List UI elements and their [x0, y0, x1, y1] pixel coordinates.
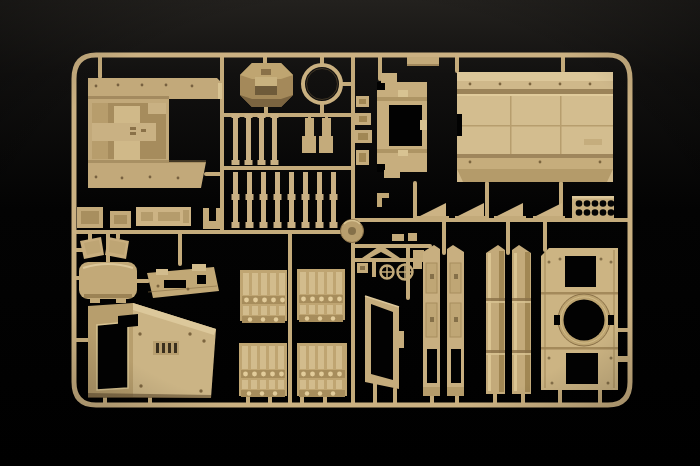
roof-panel-lip: [457, 169, 613, 182]
rack-slat: [300, 380, 306, 389]
sprue-illustration: [0, 0, 700, 466]
rack-cap: [310, 372, 315, 377]
hull-mid-bar: [92, 123, 156, 141]
rod-band: [274, 194, 282, 200]
box-b-recess: [114, 215, 127, 224]
gusset-base: [455, 216, 487, 221]
rivet: [559, 83, 562, 86]
rod-band: [330, 194, 338, 200]
rod-knob: [246, 222, 254, 228]
rod-knob: [302, 222, 310, 228]
rack-cap: [319, 372, 324, 377]
rack-slat: [279, 306, 285, 315]
rack-slat: [251, 346, 257, 369]
curved-panel-seam: [512, 298, 531, 301]
roof-panel-groove: [457, 154, 613, 158]
rack-cap: [280, 298, 285, 303]
plate-hole: [584, 200, 591, 207]
rivet: [610, 261, 613, 264]
rack-slat: [269, 346, 275, 369]
rack-cap: [243, 372, 248, 377]
rack-slat: [252, 273, 258, 295]
part-roof-curved: [79, 262, 137, 303]
part-drilled-plate: [572, 196, 614, 220]
pin-head: [369, 258, 379, 262]
rod-band: [260, 194, 268, 200]
rack-cap: [337, 372, 342, 377]
sprue-photo: [0, 0, 700, 466]
hull-seam-top: [88, 96, 169, 99]
rack-cap: [252, 372, 257, 377]
cab-grille-slat: [174, 343, 177, 353]
part-window-frame-angled: [365, 296, 404, 389]
rack-cap: [273, 391, 277, 395]
rivet: [469, 83, 472, 86]
rack-cap: [319, 297, 324, 302]
rack-cap: [274, 317, 278, 321]
turret-ring-notch: [608, 315, 614, 325]
rack-slat: [278, 346, 284, 369]
roof-panel-smudge: [584, 139, 602, 145]
plate-hole: [592, 200, 599, 207]
panel-handle: [454, 317, 458, 322]
deck-vent: [164, 280, 186, 288]
rivet: [589, 83, 592, 86]
hull-bevel: [218, 83, 222, 99]
curved-panel-seam-light: [512, 301, 531, 303]
part-ammo-rack-3: [239, 343, 287, 397]
rod-band: [316, 194, 324, 200]
curved-panel-shade: [499, 251, 504, 392]
rivet: [599, 161, 602, 164]
panel-slot: [451, 349, 461, 383]
strip-recess: [359, 99, 366, 104]
rack-cap: [261, 372, 266, 377]
curved-panel-seam: [486, 298, 505, 301]
rack-cap: [318, 391, 322, 395]
rack-cap: [318, 316, 322, 320]
panel-handle: [430, 317, 434, 322]
plate-hole: [608, 200, 615, 207]
door-frame-band: [377, 97, 427, 101]
part-ammo-rack-1: [240, 270, 287, 323]
rack-cap: [271, 298, 276, 303]
rack-slat: [260, 380, 266, 389]
rack-slat: [251, 380, 257, 389]
rivet: [121, 177, 124, 180]
rack-cap: [301, 297, 306, 302]
rivet: [191, 85, 194, 88]
rod-flange: [258, 114, 266, 118]
rivet: [139, 384, 142, 387]
rod-flange: [271, 114, 279, 118]
long-bar-detail: [141, 212, 153, 221]
long-bar-detail: [183, 210, 189, 223]
part-ammo-rack-4: [297, 343, 347, 397]
rivet: [548, 261, 551, 264]
panel-handle: [430, 274, 434, 279]
turret-ring-notch: [554, 315, 560, 325]
hull-mark: [141, 129, 146, 132]
plate-hole: [600, 209, 607, 216]
rivet: [117, 84, 120, 87]
rack-slat: [300, 272, 306, 294]
hull-seam-bottom: [88, 160, 206, 163]
rack-slat: [318, 346, 324, 369]
rack-slat: [309, 346, 315, 369]
rack-slat: [318, 305, 324, 314]
door-frame-tab-bottom: [384, 170, 400, 178]
rivet: [600, 258, 603, 261]
roof-curved-tab: [116, 298, 126, 303]
long-bar-detail: [158, 212, 180, 221]
cab-grille-slat: [168, 343, 171, 353]
part-side-panel-right: [447, 245, 464, 396]
rod-knob: [316, 222, 324, 228]
part-roof-panel: [457, 72, 613, 182]
rod-knob: [274, 222, 282, 228]
panel-foot: [423, 387, 440, 396]
hull-box-lower: [114, 141, 140, 160]
rack-slat: [336, 272, 342, 294]
rivet: [199, 389, 202, 392]
cab-top-opening: [118, 314, 138, 328]
roof-panel-top-band: [457, 72, 613, 81]
rivet: [138, 332, 141, 335]
rack-cap: [305, 391, 309, 395]
rack-slat: [300, 346, 306, 369]
cupola-scope: [261, 69, 271, 75]
rivet: [95, 176, 98, 179]
plate-body: [572, 196, 614, 220]
rack-slat: [327, 380, 333, 389]
rod-knob: [330, 222, 338, 228]
rod: [272, 118, 277, 164]
deck-hole: [197, 275, 206, 284]
rack-cap: [261, 317, 265, 321]
rod-knob: [232, 222, 240, 228]
part-door-frame: [377, 73, 427, 178]
rack-slat: [327, 272, 333, 294]
door-frame-notch: [377, 82, 385, 90]
rivet: [539, 161, 542, 164]
disc-wheel-hub: [348, 227, 356, 235]
curved-panel-seam-light: [512, 353, 531, 355]
door-frame-bump: [398, 90, 408, 97]
door-frame-bump: [420, 120, 427, 130]
rod-knob: [232, 160, 240, 165]
rack-slat: [242, 380, 248, 389]
rack-slat: [336, 305, 342, 314]
panel-handle: [454, 274, 458, 279]
part-cupola: [240, 63, 293, 107]
plate-hole: [576, 209, 583, 216]
rivet: [95, 85, 98, 88]
rod-band: [232, 194, 240, 200]
gusset-base: [494, 216, 526, 221]
rack-cap: [331, 391, 335, 395]
part-top-bar: [407, 57, 439, 66]
rack-cap: [331, 316, 335, 320]
rack-cap: [328, 297, 333, 302]
rivet: [149, 176, 152, 179]
rod: [233, 118, 238, 164]
rack-slat: [309, 305, 315, 314]
rack-cap: [244, 298, 249, 303]
rivet: [157, 285, 160, 288]
roof-panel-notch: [457, 114, 462, 136]
rod-flange: [245, 114, 253, 118]
rack-slat: [243, 273, 249, 295]
curved-panel-highlight: [514, 253, 517, 391]
box-a-recess: [81, 211, 99, 224]
gusset-base: [533, 216, 565, 221]
part-ammo-rack-2: [297, 269, 345, 322]
roof-panel-groove: [457, 89, 613, 94]
rack-cap: [262, 298, 267, 303]
rack-slat: [252, 306, 258, 315]
part-side-panel-left: [423, 245, 440, 396]
roof-curved-tab: [90, 298, 100, 303]
rivet: [548, 357, 551, 360]
strip-recess: [358, 133, 368, 140]
roof-panel-seam-h: [457, 125, 613, 127]
top-bar-shade: [407, 64, 439, 66]
frame-tab: [396, 331, 404, 348]
small-bit: [408, 233, 417, 241]
curved-panel-seam: [486, 350, 505, 353]
rack-slat: [309, 272, 315, 294]
plate-top-edge: [572, 196, 614, 199]
photo-stage: [0, 0, 700, 466]
shock-pin: [325, 114, 328, 118]
rivet: [559, 258, 562, 261]
rod-knob: [260, 222, 268, 228]
shock-base: [319, 136, 333, 153]
rack-slat: [270, 273, 276, 295]
rack-slat: [336, 380, 342, 389]
rack-slat: [261, 306, 267, 315]
strip-recess: [359, 153, 366, 162]
panel-foot: [447, 387, 464, 396]
rod-knob: [271, 160, 279, 165]
rivet: [499, 83, 502, 86]
curved-panel-seam-light: [486, 353, 505, 355]
door-frame-window: [389, 105, 422, 146]
part-ring-plate: [541, 248, 630, 390]
rivet: [202, 339, 205, 342]
shock-base: [302, 136, 316, 153]
curved-panel-seam-light: [486, 301, 505, 303]
curved-panel-shade: [525, 252, 530, 392]
rivet: [610, 357, 613, 360]
rivet: [165, 84, 168, 87]
panel-slot: [427, 349, 437, 383]
ring-plate-stub: [618, 356, 630, 362]
rack-slat: [336, 346, 342, 369]
cab-window: [97, 322, 128, 390]
hull-mark: [130, 132, 136, 135]
rack-slat: [242, 346, 248, 369]
hull-small-box: [148, 103, 166, 114]
rack-cap: [247, 391, 251, 395]
rack-cap: [248, 317, 252, 321]
roof-curved-shade: [84, 294, 132, 298]
ring-plate-seam: [541, 347, 618, 350]
rod: [246, 118, 251, 164]
rod-band: [302, 194, 310, 200]
rack-cap: [279, 372, 284, 377]
rod-knob: [258, 160, 266, 165]
plate-hole: [576, 200, 583, 207]
rack-slat: [300, 305, 306, 314]
rack-cap: [328, 372, 333, 377]
rod-knob: [288, 222, 296, 228]
rivet: [469, 161, 472, 164]
rack-slat: [327, 305, 333, 314]
shock-body: [305, 118, 314, 138]
rack-slat: [309, 380, 315, 389]
rack-slat: [278, 380, 284, 389]
roof-panel-lower-band: [457, 158, 613, 169]
rack-slat: [327, 346, 333, 369]
deck-tab: [156, 269, 168, 275]
rack-slat: [261, 273, 267, 295]
rod-band: [246, 194, 254, 200]
small-bit: [413, 262, 422, 269]
door-frame-notch: [377, 164, 385, 172]
rack-cap: [305, 316, 309, 320]
curved-panel-highlight: [488, 253, 491, 391]
rod-band: [288, 194, 296, 200]
door-frame-tab-top: [381, 73, 397, 83]
shock-body: [322, 118, 331, 138]
pin-shaft: [372, 261, 376, 277]
rivet: [187, 288, 190, 291]
rivet: [529, 83, 532, 86]
rod: [259, 118, 264, 164]
gusset-base: [417, 216, 449, 221]
rack-slat: [260, 346, 266, 369]
small-bit: [392, 234, 404, 241]
rack-cap: [270, 372, 275, 377]
scene-root: [74, 55, 630, 405]
rack-slat: [318, 380, 324, 389]
roof-panel-ridge: [457, 94, 613, 96]
rivet: [551, 382, 554, 385]
strip-recess: [359, 116, 367, 122]
rack-slat: [279, 273, 285, 295]
curved-panel-seam: [512, 350, 531, 353]
part-curved-panel-left: [486, 245, 505, 394]
frame-opening: [371, 304, 393, 380]
rivet: [177, 177, 180, 180]
rack-cap: [260, 391, 264, 395]
ring-plate-hatch-top: [565, 256, 596, 287]
cab-grille-slat: [156, 343, 159, 353]
turret-ring-hole: [564, 300, 605, 341]
plate-hole: [584, 209, 591, 216]
rack-cap: [301, 372, 306, 377]
rack-cap: [337, 297, 342, 302]
shock-pin: [308, 114, 311, 118]
rivet: [607, 382, 610, 385]
rod-knob: [245, 160, 253, 165]
small-box-recess: [360, 266, 365, 270]
plate-hole: [592, 209, 599, 216]
rack-cap: [253, 298, 258, 303]
hull-box-upper: [114, 106, 140, 124]
rack-slat: [270, 306, 276, 315]
cab-grille-slat: [162, 343, 165, 353]
cupola-hatch-side: [255, 86, 277, 95]
rod-flange: [232, 114, 240, 118]
part-curved-panel-right: [512, 245, 531, 394]
rack-slat: [318, 272, 324, 294]
hull-mark: [130, 127, 136, 130]
rack-slat: [243, 306, 249, 315]
rivet: [188, 332, 191, 335]
door-frame-bump: [398, 150, 408, 156]
plate-hole: [600, 200, 607, 207]
plate-hole: [608, 209, 615, 216]
deck-tab: [192, 264, 206, 271]
rack-cap: [310, 297, 315, 302]
rivet: [141, 84, 144, 87]
small-bit: [413, 250, 424, 258]
ring-plate-hatch-bottom: [566, 353, 598, 384]
rack-slat: [269, 380, 275, 389]
